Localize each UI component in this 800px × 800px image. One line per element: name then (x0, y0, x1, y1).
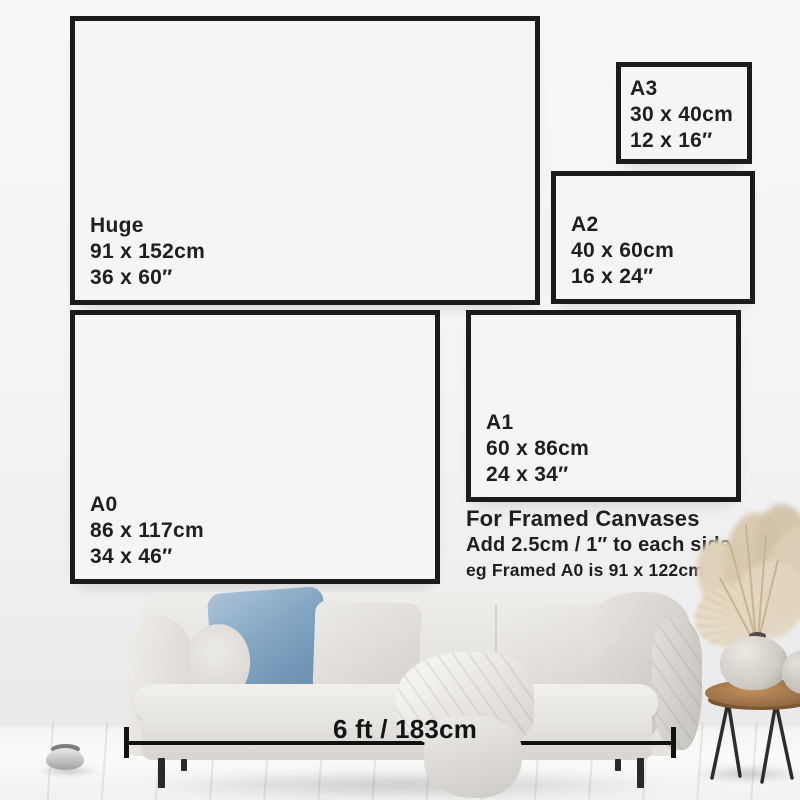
measurement-endcap-right (671, 727, 676, 758)
size-cm: 60 x 86cm (486, 436, 589, 462)
size-label-a3: A3 30 x 40cm 12 x 16″ (630, 76, 733, 154)
size-box-a2: A2 40 x 60cm 16 x 24″ (551, 171, 755, 304)
sofa-leg (181, 759, 187, 771)
size-label-a1: A1 60 x 86cm 24 x 34″ (486, 410, 589, 488)
size-box-a3: A3 30 x 40cm 12 x 16″ (616, 62, 752, 164)
size-inches: 24 x 34″ (486, 462, 589, 488)
size-label-huge: Huge 91 x 152cm 36 x 60″ (90, 213, 205, 291)
size-cm: 30 x 40cm (630, 102, 733, 128)
size-name: Huge (90, 213, 205, 239)
size-guide-scene: Huge 91 x 152cm 36 x 60″ A3 30 x 40cm 12… (0, 0, 800, 800)
size-cm: 91 x 152cm (90, 239, 205, 265)
size-inches: 16 x 24″ (571, 264, 674, 290)
sofa-leg (615, 759, 621, 771)
size-inches: 36 x 60″ (90, 265, 205, 291)
hairpin-legs (712, 707, 792, 782)
round-white-vase (720, 636, 788, 690)
size-name: A2 (571, 212, 674, 238)
size-name: A3 (630, 76, 733, 102)
size-label-a2: A2 40 x 60cm 16 x 24″ (571, 212, 674, 290)
size-name: A1 (486, 410, 589, 436)
measurement-label: 6 ft / 183cm (298, 714, 512, 745)
size-name: A0 (90, 492, 204, 518)
size-label-a0: A0 86 x 117cm 34 x 46″ (90, 492, 204, 570)
size-cm: 40 x 60cm (571, 238, 674, 264)
size-inches: 34 x 46″ (90, 544, 204, 570)
size-box-a1: A1 60 x 86cm 24 x 34″ (466, 310, 741, 502)
sofa-leg (158, 758, 165, 788)
size-box-a0: A0 86 x 117cm 34 x 46″ (70, 310, 440, 584)
size-cm: 86 x 117cm (90, 518, 204, 544)
size-inches: 12 x 16″ (630, 128, 733, 154)
pampas-stems (720, 525, 778, 642)
size-box-huge: Huge 91 x 152cm 36 x 60″ (70, 16, 540, 305)
floor-bowl (46, 748, 84, 770)
sofa-leg (637, 758, 644, 788)
sofa-floor-shadow (132, 772, 677, 798)
measurement-endcap-left (124, 727, 129, 758)
